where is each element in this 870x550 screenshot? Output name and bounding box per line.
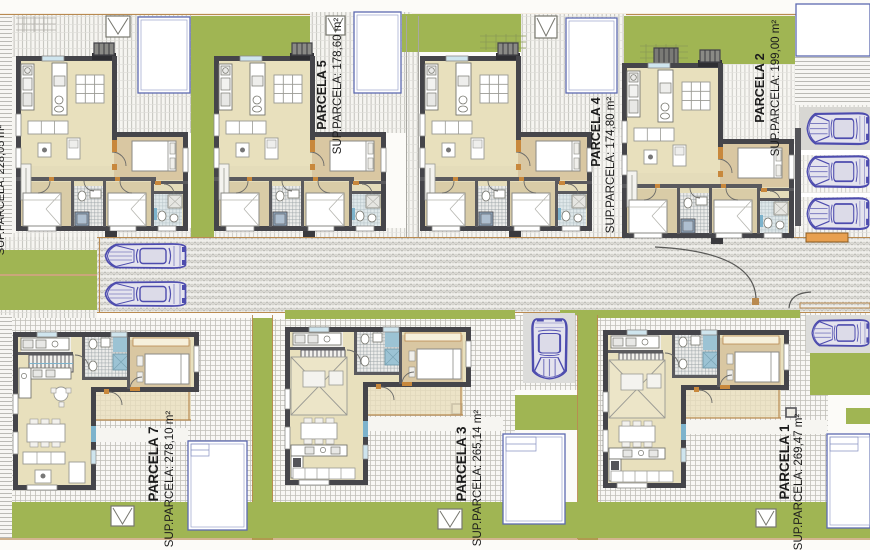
svg-text:PARCELA 1: PARCELA 1: [777, 424, 792, 500]
svg-text:SUP.PARCELA: 199,00 m²: SUP.PARCELA: 199,00 m²: [770, 20, 782, 157]
svg-text:PARCELA 7: PARCELA 7: [146, 426, 161, 501]
svg-text:SUP.PARCELA: 278,10 m²: SUP.PARCELA: 278,10 m²: [164, 411, 176, 548]
svg-text:PARCELA 2: PARCELA 2: [753, 53, 767, 123]
svg-text:PARCELA 3: PARCELA 3: [454, 426, 469, 502]
svg-text:SUP.PARCELA: 269,47 m²: SUP.PARCELA: 269,47 m²: [793, 414, 805, 550]
svg-text:SUP.PARCELA: 265,14 m²: SUP.PARCELA: 265,14 m²: [472, 410, 484, 547]
svg-text:SUP.PARCELA: 178,60 m²: SUP.PARCELA: 178,60 m²: [332, 18, 344, 155]
svg-text:SUP.PARCELA: 228,05 m²: SUP.PARCELA: 228,05 m²: [0, 124, 7, 255]
svg-text:PARCELA 5: PARCELA 5: [315, 60, 329, 130]
svg-text:SUP.PARCELA: 174,80 m²: SUP.PARCELA: 174,80 m²: [605, 97, 617, 234]
svg-text:PARCELA 4: PARCELA 4: [589, 97, 603, 167]
